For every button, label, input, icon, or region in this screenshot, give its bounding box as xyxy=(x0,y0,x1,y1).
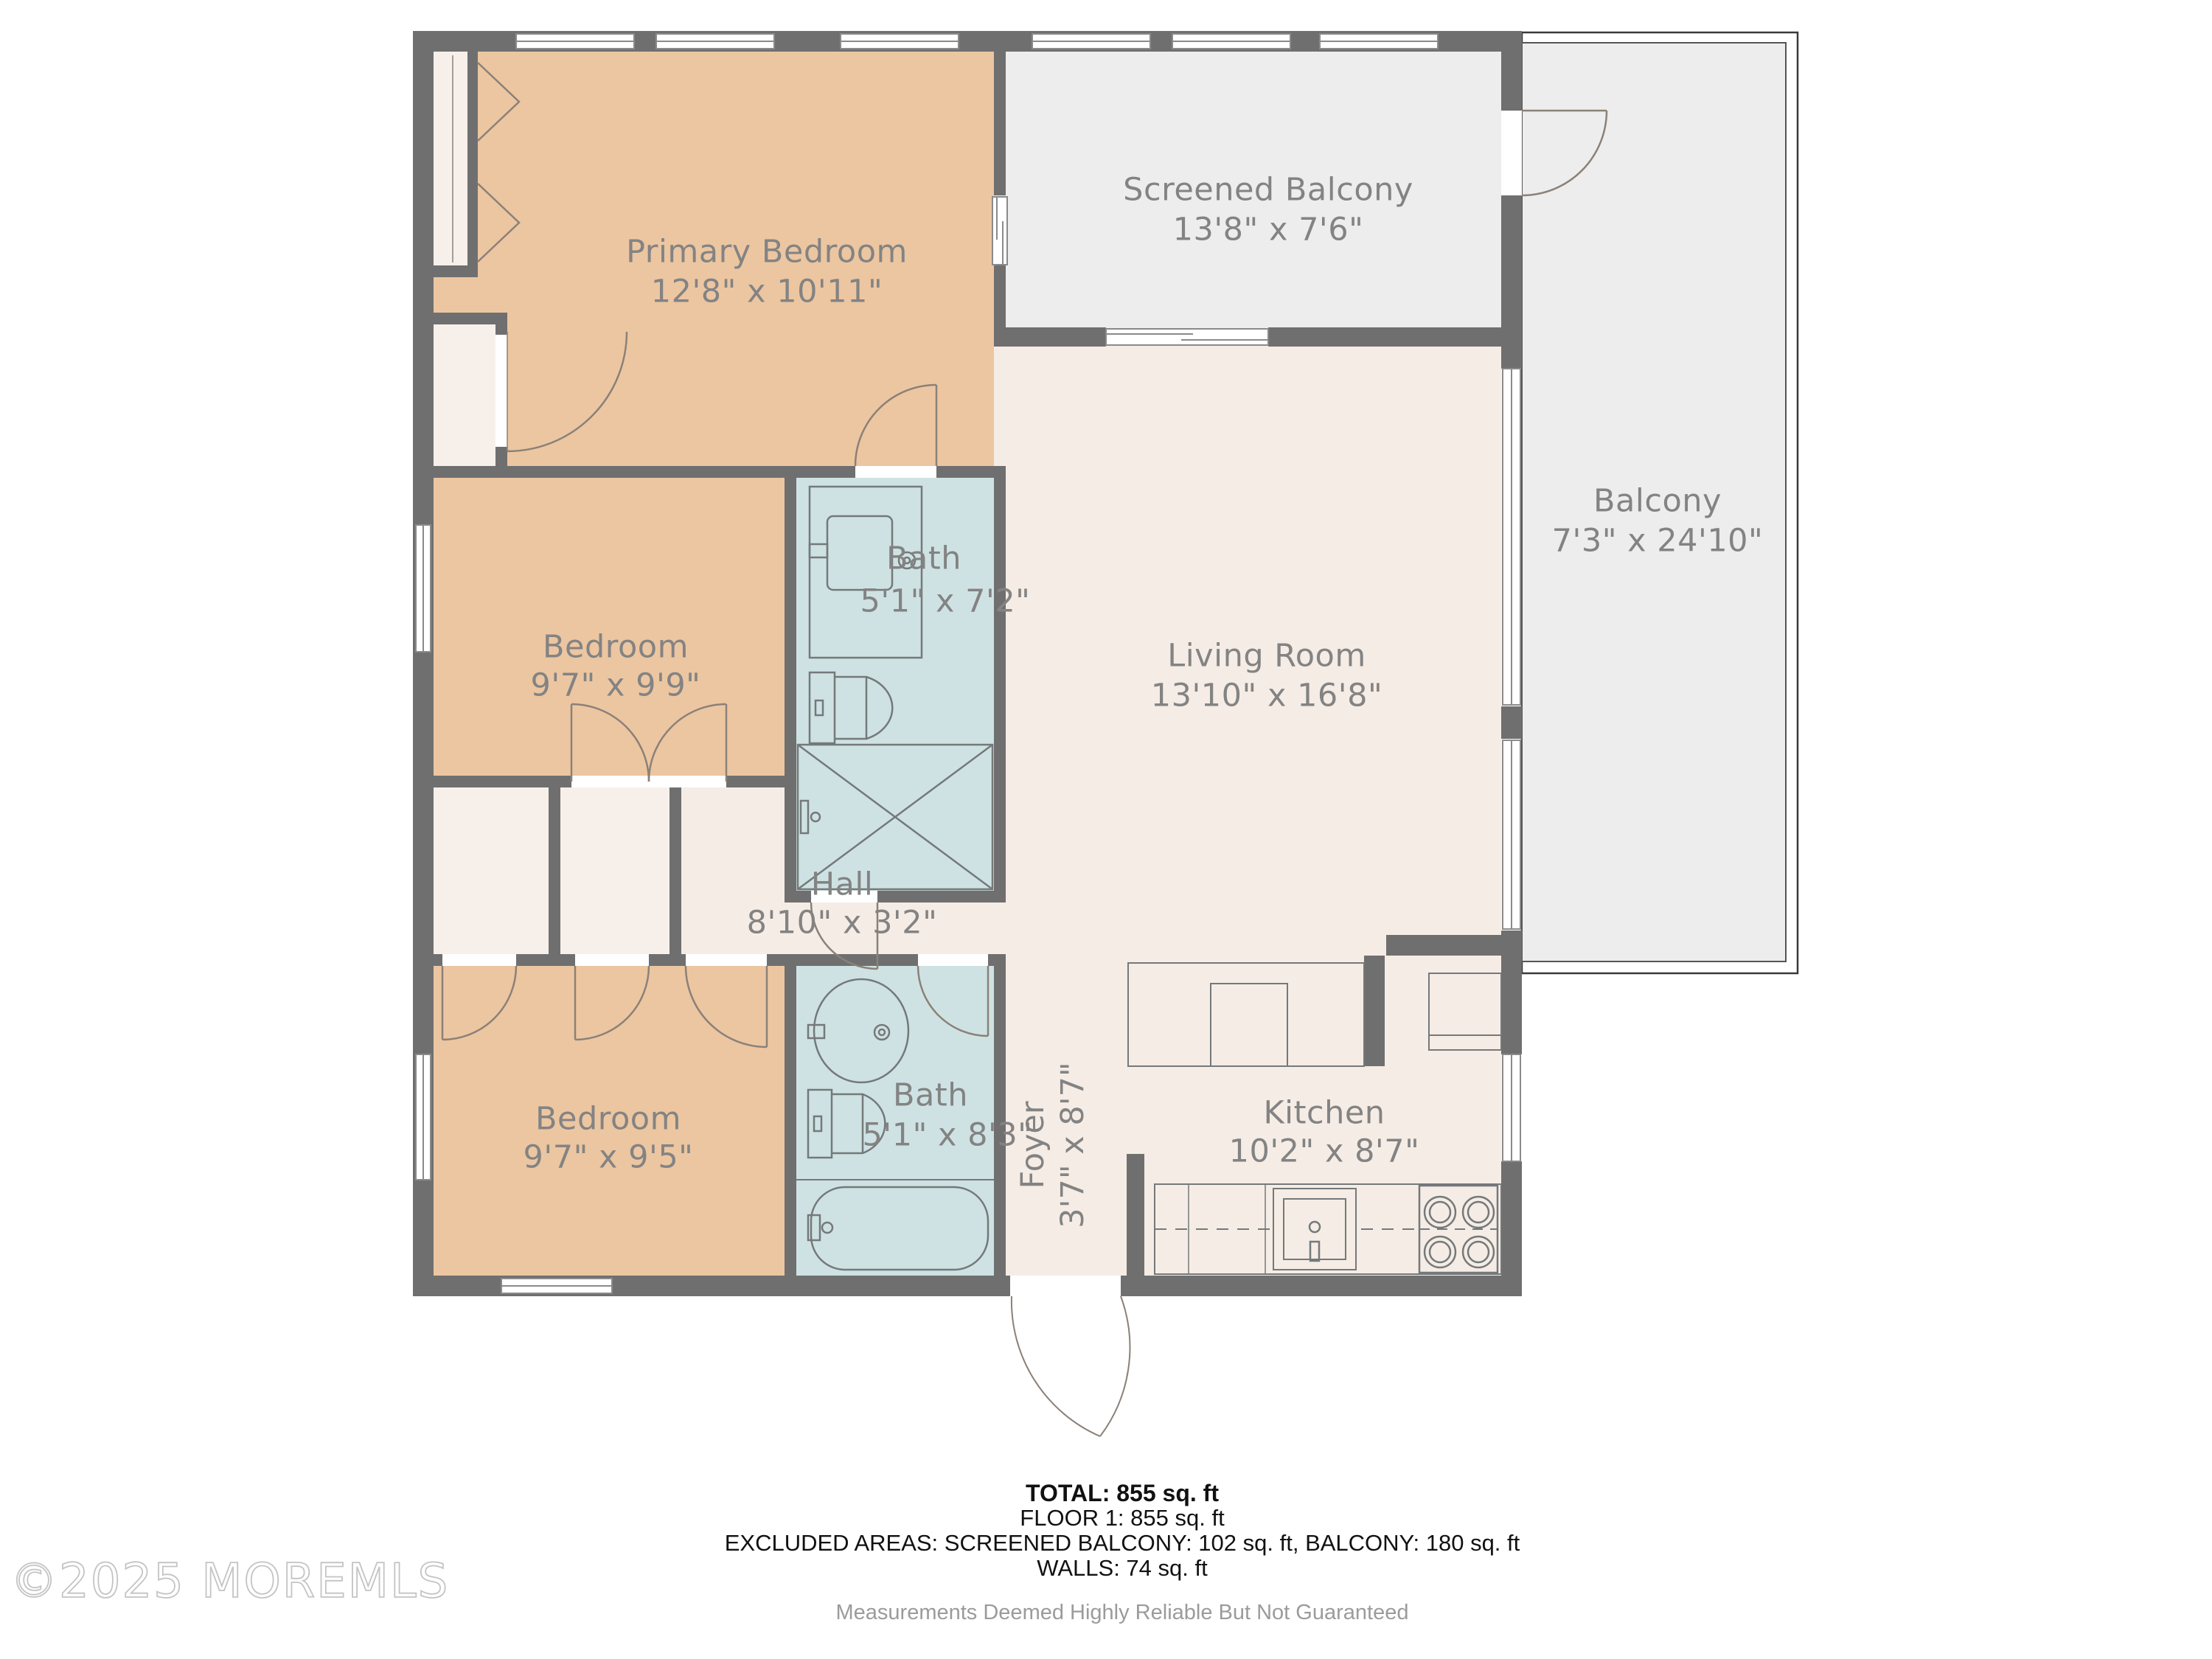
room-dims-bedroom-lower: 9'7" x 9'5" xyxy=(524,1142,694,1174)
floor-plan-page: Primary Bedroom 12'8" x 10'11" Screened … xyxy=(0,0,2212,1659)
room-label-bedroom-mid: Bedroom xyxy=(543,632,689,664)
room-dims-screened-balcony: 13'8" x 7'6" xyxy=(1173,215,1364,246)
room-label-hall: Hall xyxy=(811,869,874,901)
bedroom-mid-area xyxy=(434,478,785,776)
kitchen-island xyxy=(1128,963,1364,1066)
refrigerator-icon xyxy=(1429,973,1501,1050)
room-dims-primary-bedroom: 12'8" x 10'11" xyxy=(651,276,883,308)
summary-walls: WALLS: 74 sq. ft xyxy=(725,1556,1520,1581)
room-dims-bath-upper: 5'1" x 7'2" xyxy=(860,586,1031,618)
room-label-balcony: Balcony xyxy=(1593,486,1722,518)
summary-disclaimer: Measurements Deemed Highly Reliable But … xyxy=(725,1600,1520,1625)
room-label-kitchen: Kitchen xyxy=(1263,1098,1385,1130)
primary-closet-area xyxy=(434,324,495,466)
summary-floor1: FLOOR 1: 855 sq. ft xyxy=(725,1506,1520,1531)
stove-icon xyxy=(1419,1186,1498,1273)
room-label-bath-upper: Bath xyxy=(886,543,961,575)
room-dims-kitchen: 10'2" x 8'7" xyxy=(1229,1136,1420,1168)
room-label-primary-bedroom: Primary Bedroom xyxy=(626,237,908,268)
area-summary: TOTAL: 855 sq. ft FLOOR 1: 855 sq. ft EX… xyxy=(725,1481,1520,1625)
room-dims-balcony: 7'3" x 24'10" xyxy=(1552,526,1764,557)
hall-closet-a-area xyxy=(434,787,549,954)
room-label-bedroom-lower: Bedroom xyxy=(535,1104,681,1135)
foyer-name: Foyer xyxy=(1013,1062,1053,1228)
room-label-bath-lower: Bath xyxy=(893,1080,968,1112)
floor-plan-canvas xyxy=(0,0,2212,1659)
room-dims-living-room: 13'10" x 16'8" xyxy=(1151,681,1383,712)
foyer-dims: 3'7" x 8'7" xyxy=(1053,1062,1093,1228)
summary-excluded: EXCLUDED AREAS: SCREENED BALCONY: 102 sq… xyxy=(725,1531,1520,1556)
mls-watermark: ©2025 MOREMLS xyxy=(10,1554,449,1609)
hall-closet-b-area xyxy=(560,787,669,954)
summary-total: TOTAL: 855 sq. ft xyxy=(725,1481,1520,1506)
room-dims-bedroom-mid: 9'7" x 9'9" xyxy=(531,670,701,702)
room-label-foyer: Foyer 3'7" x 8'7" xyxy=(1013,1062,1093,1228)
room-dims-bath-lower: 5'1" x 8'3" xyxy=(863,1120,1033,1152)
primary-closet-strip-area xyxy=(434,52,467,265)
room-dims-hall: 8'10" x 3'2" xyxy=(747,908,938,939)
kitchen-sink-icon xyxy=(1273,1189,1356,1270)
room-label-screened-balcony: Screened Balcony xyxy=(1123,175,1413,206)
room-label-living-room: Living Room xyxy=(1167,641,1366,672)
